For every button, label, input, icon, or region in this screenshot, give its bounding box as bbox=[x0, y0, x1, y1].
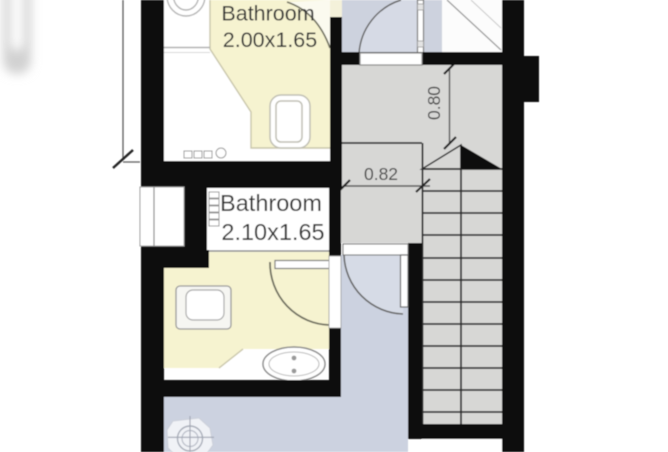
svg-text:0.82: 0.82 bbox=[364, 164, 398, 184]
svg-text:2.00x1.65: 2.00x1.65 bbox=[223, 28, 317, 52]
svg-text:0.80: 0.80 bbox=[424, 86, 444, 120]
svg-text:2.10x1.65: 2.10x1.65 bbox=[221, 219, 324, 245]
svg-text:Bathroom: Bathroom bbox=[220, 190, 322, 216]
svg-text:Bathroom: Bathroom bbox=[221, 2, 314, 26]
